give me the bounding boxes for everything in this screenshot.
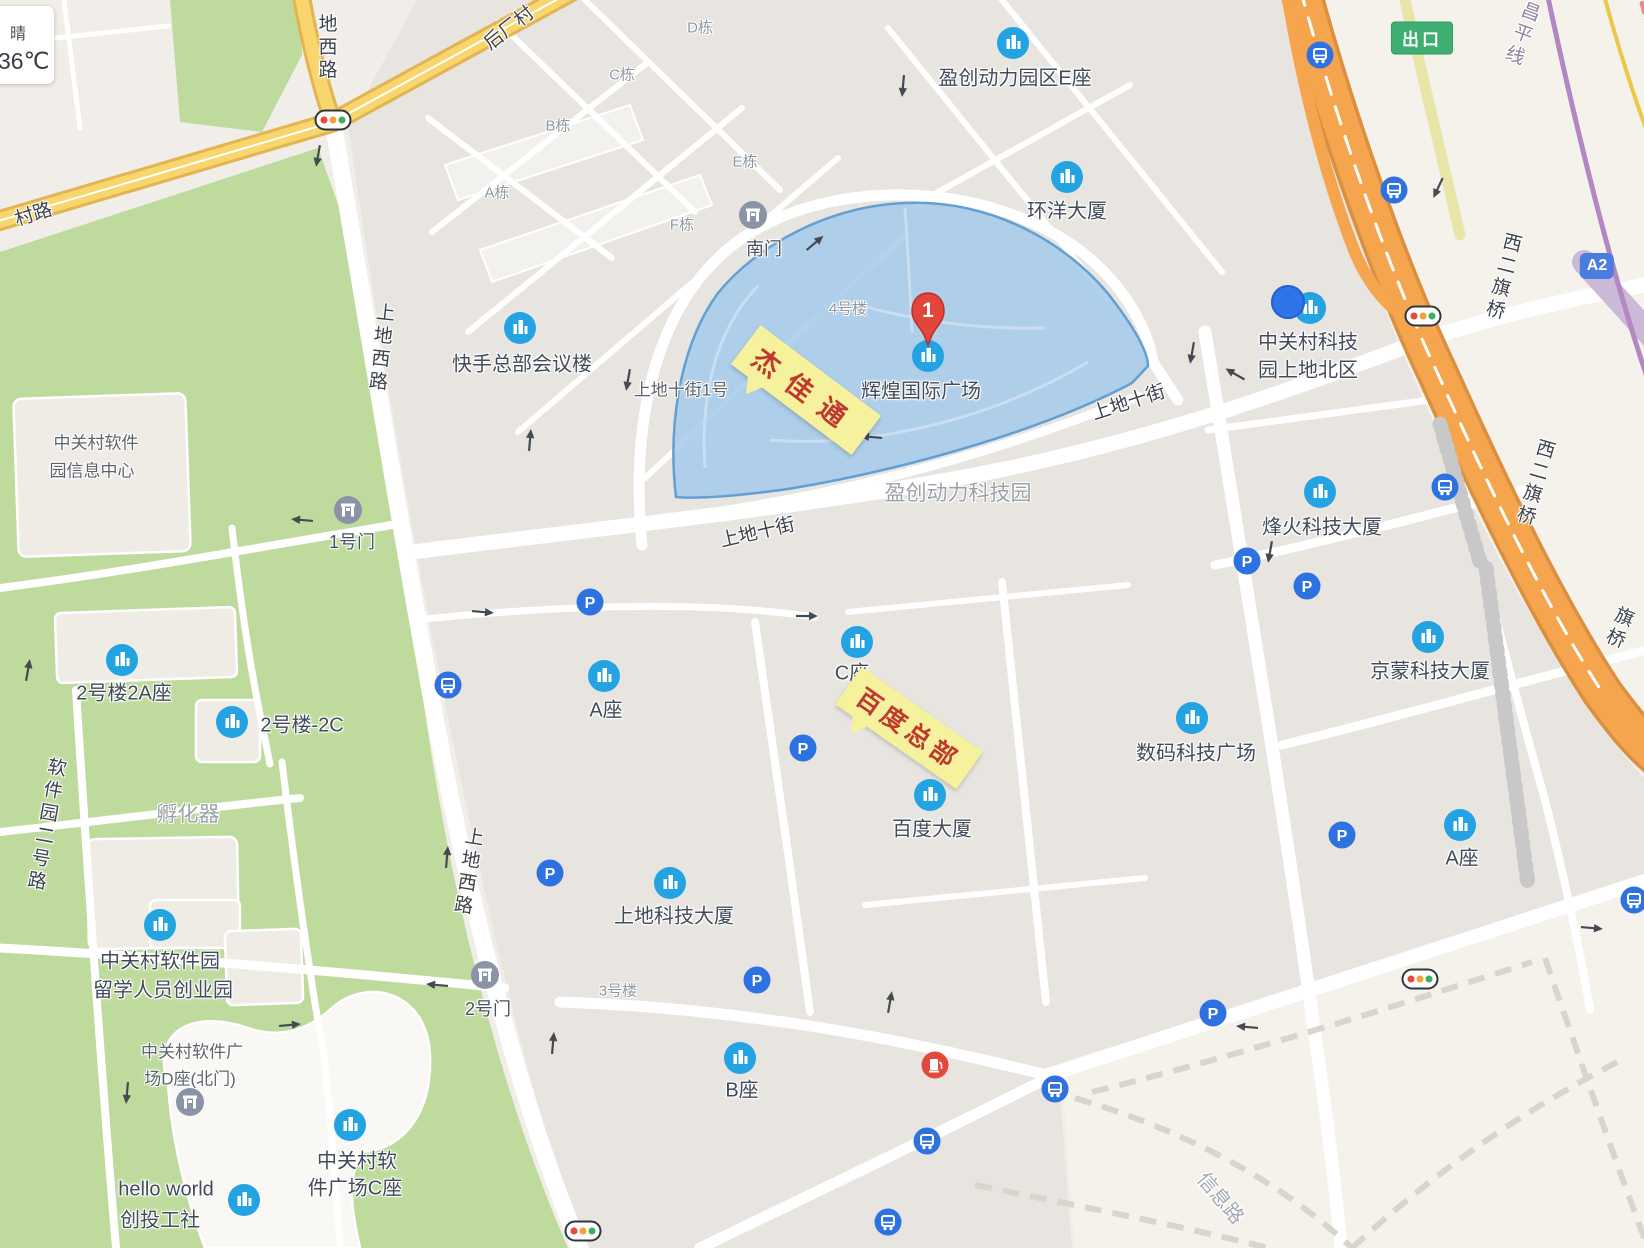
weather-temperature: 36℃ <box>0 48 49 75</box>
area-label: 盈创动力科技园 <box>885 477 1032 507</box>
building-icon[interactable] <box>723 1041 757 1075</box>
area-label: A栋 <box>484 182 509 203</box>
traffic-light-icon <box>1402 969 1439 990</box>
traffic-light-icon <box>315 110 352 131</box>
svg-text:P: P <box>1208 1006 1219 1023</box>
poi-label[interactable]: 上地科技大厦 <box>614 900 734 929</box>
building-icon[interactable] <box>227 1183 261 1217</box>
area-label: 4号楼 <box>829 298 867 319</box>
oneway-arrow-icon <box>896 73 910 100</box>
building-icon[interactable] <box>333 1108 367 1142</box>
oneway-arrow-icon <box>277 1018 304 1032</box>
address-label: 上地十街1号 <box>634 376 728 401</box>
oneway-arrow-icon <box>794 610 820 622</box>
building-icon[interactable] <box>1175 701 1209 735</box>
oneway-arrow-icon <box>120 1080 134 1107</box>
address-label: 园信息中心 <box>50 457 135 482</box>
building-icon[interactable] <box>840 625 874 659</box>
poi-label[interactable]: B座 <box>725 1074 758 1103</box>
parking-icon[interactable]: P <box>789 734 817 762</box>
parking-icon[interactable]: P <box>1328 821 1356 849</box>
poi-label[interactable]: 京蒙科技大厦 <box>1370 655 1490 684</box>
poi-label[interactable]: A座 <box>1445 842 1478 871</box>
oneway-arrow-icon <box>289 513 316 527</box>
address-label: 中关村软件 <box>54 429 139 454</box>
poi-label[interactable]: A座 <box>589 694 622 723</box>
oneway-arrow-icon <box>1234 1020 1261 1034</box>
weather-condition: 晴 <box>10 20 26 44</box>
subway-exit-badge: 出口 <box>1391 22 1453 55</box>
bus-stop-icon[interactable] <box>1620 886 1644 914</box>
marker-number: 1 <box>906 299 950 323</box>
building-icon[interactable] <box>996 26 1030 60</box>
poi-label[interactable]: 辉煌国际广场 <box>861 375 981 404</box>
building-icon[interactable] <box>1443 808 1477 842</box>
svg-text:P: P <box>545 866 556 883</box>
bus-stop-icon[interactable] <box>874 1208 902 1236</box>
bus-stop-icon[interactable] <box>1380 176 1408 204</box>
address-label: 场D座(北门) <box>144 1065 236 1090</box>
poi-label[interactable]: 中关村软件园 <box>100 945 220 974</box>
gas-station-icon[interactable] <box>921 1051 949 1079</box>
building-icon[interactable] <box>1050 160 1084 194</box>
oneway-arrow-icon <box>523 427 537 454</box>
poi-label[interactable]: 盈创动力园区E座 <box>938 62 1091 91</box>
svg-text:P: P <box>585 595 596 612</box>
gate-label: 1号门 <box>329 528 375 554</box>
building-icon[interactable] <box>503 311 537 345</box>
parking-icon[interactable]: P <box>576 588 604 616</box>
parking-icon[interactable]: P <box>1199 999 1227 1027</box>
svg-text:P: P <box>1242 554 1253 571</box>
oneway-arrow-icon <box>1579 921 1606 935</box>
oneway-arrow-icon <box>470 605 497 619</box>
gate-icon[interactable] <box>175 1087 205 1117</box>
building-icon[interactable] <box>1411 620 1445 654</box>
poi-label[interactable]: 件广场C座 <box>308 1172 402 1201</box>
area-label: 3号楼 <box>599 980 637 1001</box>
area-label: 孵化器 <box>157 798 220 828</box>
gate-label: 2号门 <box>465 995 511 1021</box>
poi-label[interactable]: 烽火科技大厦 <box>1262 511 1382 540</box>
map-viewport[interactable]: 盈创动力园区E座环洋大厦快手总部会议楼辉煌国际广场中关村科技园上地北区烽火科技大… <box>0 0 1644 1248</box>
oneway-arrow-icon <box>546 1030 560 1057</box>
oneway-arrow-icon <box>440 844 454 871</box>
poi-label[interactable]: 环洋大厦 <box>1027 195 1107 224</box>
svg-text:P: P <box>1337 828 1348 845</box>
poi-label[interactable]: hello world <box>118 1179 214 1202</box>
parking-icon[interactable]: P <box>743 966 771 994</box>
building-icon[interactable] <box>587 659 621 693</box>
poi-label[interactable]: 数码科技广场 <box>1136 737 1256 766</box>
poi-label[interactable]: 2号楼2A座 <box>76 677 172 706</box>
weather-widget: 晴 36℃ <box>0 6 54 84</box>
poi-label[interactable]: 中关村软 <box>317 1145 397 1174</box>
gate-icon[interactable] <box>470 960 500 990</box>
bus-stop-icon[interactable] <box>1306 41 1334 69</box>
poi-label[interactable]: 2号楼-2C <box>260 709 343 738</box>
building-icon[interactable] <box>913 778 947 812</box>
building-icon[interactable] <box>215 705 249 739</box>
parking-icon[interactable]: P <box>536 859 564 887</box>
poi-label[interactable]: 园上地北区 <box>1258 354 1358 383</box>
svg-text:P: P <box>1302 579 1313 596</box>
area-label: B栋 <box>545 115 570 136</box>
building-icon[interactable] <box>105 643 139 677</box>
poi-label[interactable]: 留学人员创业园 <box>93 974 233 1003</box>
area-label: D栋 <box>687 17 713 38</box>
gate-label: 南门 <box>746 235 782 261</box>
gate-icon[interactable] <box>738 200 768 230</box>
poi-label[interactable]: 百度大厦 <box>892 813 972 842</box>
area-label: E栋 <box>732 151 757 172</box>
traffic-light-icon <box>1405 306 1442 327</box>
building-icon[interactable] <box>143 908 177 942</box>
parking-icon[interactable]: P <box>1293 572 1321 600</box>
road-label: 地西路 <box>313 14 340 83</box>
address-label: 中关村软件广 <box>141 1038 243 1063</box>
bus-stop-icon[interactable] <box>1431 473 1459 501</box>
a2-exit-badge: A2 <box>1580 253 1614 279</box>
current-location-dot <box>1271 285 1305 319</box>
oneway-arrow-icon <box>424 978 451 992</box>
poi-label[interactable]: 快手总部会议楼 <box>452 348 592 377</box>
bus-stop-icon[interactable] <box>913 1127 941 1155</box>
gate-icon[interactable] <box>333 495 363 525</box>
building-icon[interactable] <box>653 866 687 900</box>
poi-label[interactable]: 中关村科技 <box>1258 326 1358 355</box>
poi-label[interactable]: 创投工社 <box>120 1204 200 1233</box>
bus-stop-icon[interactable] <box>1041 1075 1069 1103</box>
svg-text:P: P <box>798 741 809 758</box>
area-label: F栋 <box>670 214 694 235</box>
bus-stop-icon[interactable] <box>434 671 462 699</box>
area-label: C栋 <box>609 64 635 85</box>
parking-icon[interactable]: P <box>1233 547 1261 575</box>
traffic-light-icon <box>565 1221 602 1242</box>
building-icon[interactable] <box>1303 475 1337 509</box>
svg-text:P: P <box>752 973 763 990</box>
result-marker-pin[interactable]: 1 <box>906 291 950 352</box>
